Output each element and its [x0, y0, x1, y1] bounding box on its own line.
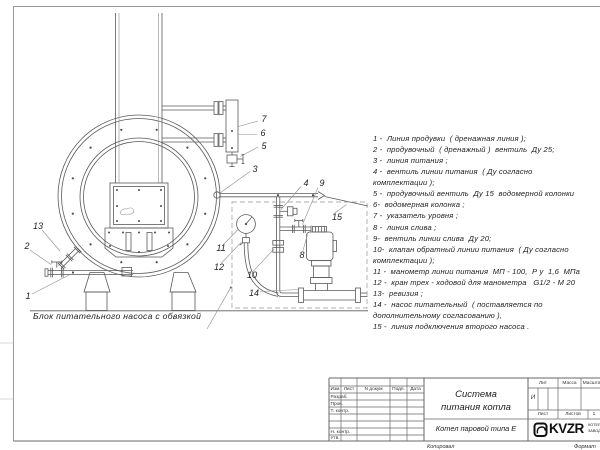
format-label: Формат	[574, 444, 596, 450]
check-valve	[273, 241, 284, 253]
feed-line	[214, 192, 368, 207]
parts-legend: 1 - Линия продувки ( дренажная линия );2…	[373, 133, 600, 332]
list-label: Лист	[528, 412, 558, 418]
callout-11: 11	[216, 243, 225, 253]
row-tkontr: Т. контр.	[331, 409, 350, 415]
col-izm: Изм	[329, 387, 341, 393]
row-nkontr: Н. контр.	[331, 430, 351, 436]
callout-1: 1	[25, 291, 30, 301]
water-gauge-column	[162, 100, 245, 167]
masshtab-label: Масштаб	[581, 381, 600, 387]
col-data: Дата	[407, 387, 424, 393]
legend-line: 9- вентиль линии слива Ду 20;	[373, 233, 600, 244]
legend-line: 15 - линия подключения второго насоса .	[373, 321, 600, 332]
col-ndokum: N докум	[357, 387, 390, 393]
feed-valve	[274, 206, 298, 218]
product-name: Котел паровой типа Е	[424, 424, 528, 433]
callout-2: 2	[24, 241, 29, 251]
row-utv: Утв.	[331, 436, 340, 442]
listov-label: Листов	[558, 412, 588, 418]
front-plate	[105, 228, 173, 257]
blowdown-valve	[227, 152, 245, 167]
logo-sub2: ЗАВОД Р	[588, 429, 600, 433]
pressure-gauge	[237, 215, 256, 238]
legend-line: 14 - насос питательный ( поставляется по	[373, 299, 600, 310]
legend-line: 7 - указатель уровня ;	[373, 210, 600, 221]
row-prov: Пров.	[331, 402, 344, 408]
callout-13: 13	[33, 221, 43, 231]
drain-branch	[280, 219, 311, 233]
legend-line: 8 - линия слива ;	[373, 222, 600, 233]
kvzr-logo-text: KVZR	[549, 421, 584, 436]
legend-line: 12 - кран трех - ходовой для манометра G…	[373, 277, 600, 288]
drawing-sheet: 1 - Линия продувки ( дренажная линия );2…	[0, 0, 600, 450]
support-legs	[84, 273, 196, 311]
callout-15: 15	[332, 212, 342, 222]
callout-10: 10	[247, 270, 257, 280]
legend-line: 13- ревизия ;	[373, 288, 600, 299]
manhole-door	[110, 183, 168, 228]
legend-line: 10- клапан обратный линии питания ( Ду с…	[373, 244, 600, 255]
lit-value: И	[528, 395, 538, 401]
row-razrab: Разраб.	[331, 395, 348, 401]
callout-12: 12	[214, 262, 224, 272]
legend-line: 1 - Линия продувки ( дренажная линия );	[373, 133, 600, 144]
legend-line: 3 - линия питания ;	[373, 155, 600, 166]
massa-label: Масса	[558, 381, 581, 387]
legend-line: 4 - вентиль линии питания ( Ду согласно	[373, 166, 600, 177]
feed-pump	[299, 227, 368, 303]
legend-line: 6- водомерная колонка ;	[373, 199, 600, 210]
legend-line: комплектации );	[373, 255, 600, 266]
logo-sub1: КОТЕЛЬНЫЙ	[588, 423, 600, 427]
callout-14: 14	[249, 288, 259, 298]
col-podp: Подп.	[390, 387, 407, 393]
kopiroval-label: Копировал	[427, 444, 454, 450]
legend-line: 5 - продувочный вентиль Ду 15 водомерной…	[373, 188, 600, 199]
callout-7: 7	[261, 114, 266, 124]
legend-line: дополнительному согласованию ),	[373, 310, 600, 321]
legend-line: комплектации );	[373, 177, 600, 188]
callout-4: 4	[303, 178, 308, 188]
legend-line: 11 - манометр линии питания МП - 100, Р …	[373, 266, 600, 277]
callout-3: 3	[252, 164, 257, 174]
col-list: Лист	[341, 387, 357, 393]
title-line2: питания котла	[424, 402, 528, 413]
callout-5: 5	[261, 141, 266, 151]
chimney-stack	[116, 13, 163, 183]
callout-9: 9	[319, 178, 324, 188]
flow-arrow	[318, 192, 325, 200]
shell-bolts	[72, 129, 207, 264]
title-line1: Система	[424, 389, 528, 400]
legend-line: 2 - продувочный ( дренажный ) вентиль Ду…	[373, 144, 600, 155]
callout-8: 8	[299, 250, 304, 260]
callout-6: 6	[260, 128, 265, 138]
drawing-caption: Блок питательного насоса с обвязкой	[33, 311, 201, 321]
kvzr-logo-emblem	[535, 424, 547, 437]
listov-value: 1	[588, 412, 600, 418]
lit-label: Лит	[528, 381, 558, 387]
sight-mark	[120, 208, 134, 215]
